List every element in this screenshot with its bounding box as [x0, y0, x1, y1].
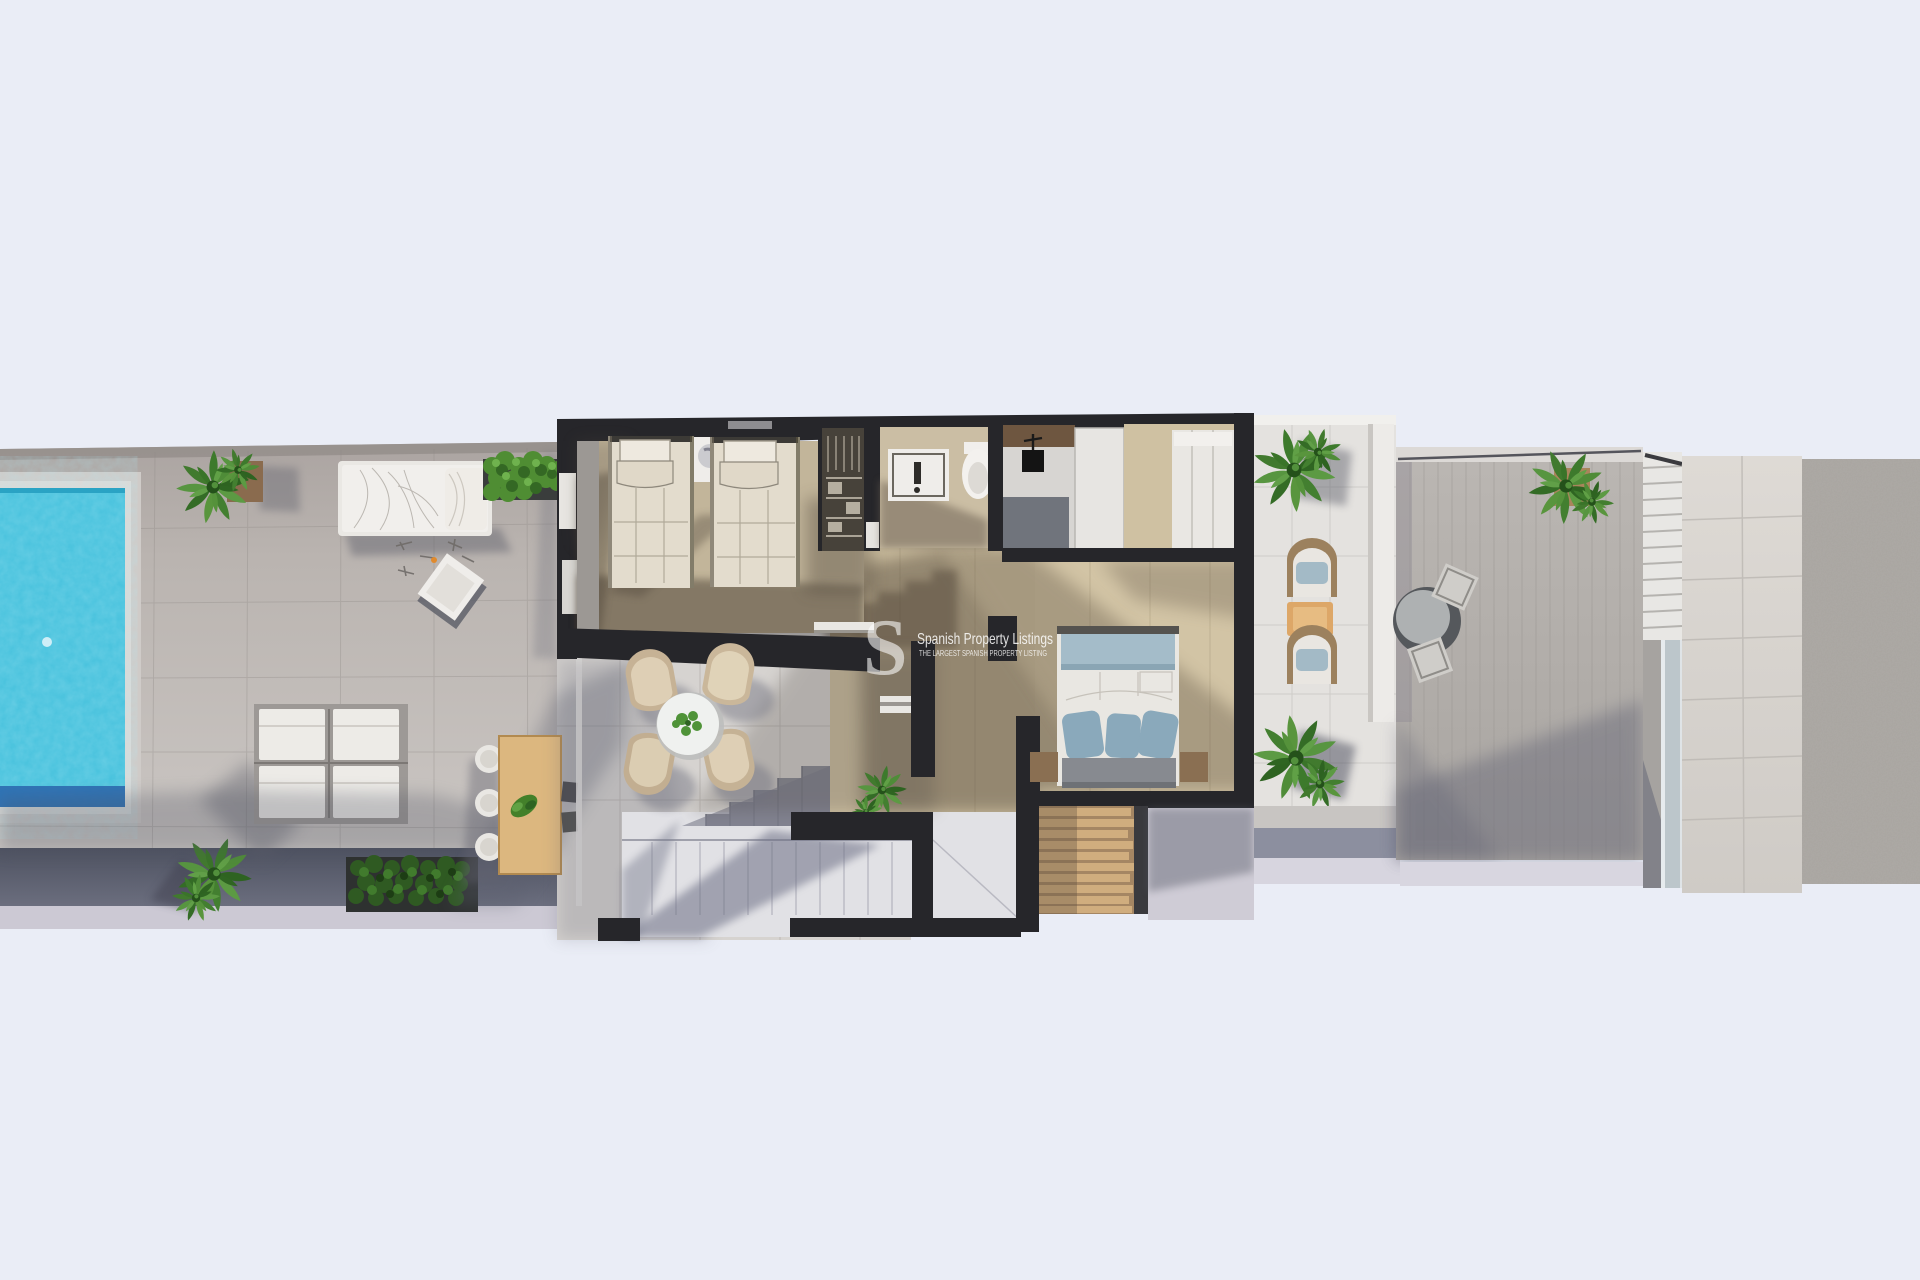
svg-text:Spanish Property Listings: Spanish Property Listings — [917, 631, 1053, 648]
svg-text:S: S — [863, 604, 908, 692]
svg-text:THE LARGEST SPANISH PROPERTY L: THE LARGEST SPANISH PROPERTY LISTING — [919, 648, 1047, 658]
